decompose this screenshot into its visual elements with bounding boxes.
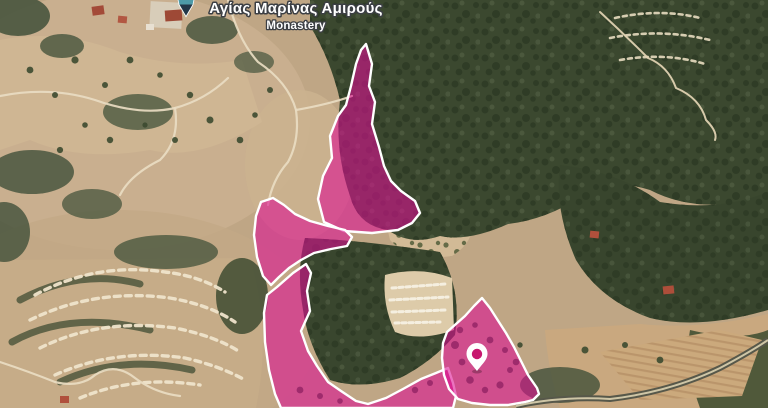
map-viewport[interactable]: Αγίας Μαρίνας Αμιρούς Monastery bbox=[0, 0, 768, 408]
building-cluster bbox=[384, 271, 454, 336]
location-pin-dot bbox=[472, 349, 482, 359]
place-subtitle-label: Monastery bbox=[266, 20, 326, 32]
satellite-map[interactable]: Αγίας Μαρίνας Αμιρούς Monastery bbox=[0, 0, 768, 408]
place-title-label: Αγίας Μαρίνας Αμιρούς bbox=[209, 0, 383, 17]
monastery-marker-top bbox=[179, 0, 194, 5]
